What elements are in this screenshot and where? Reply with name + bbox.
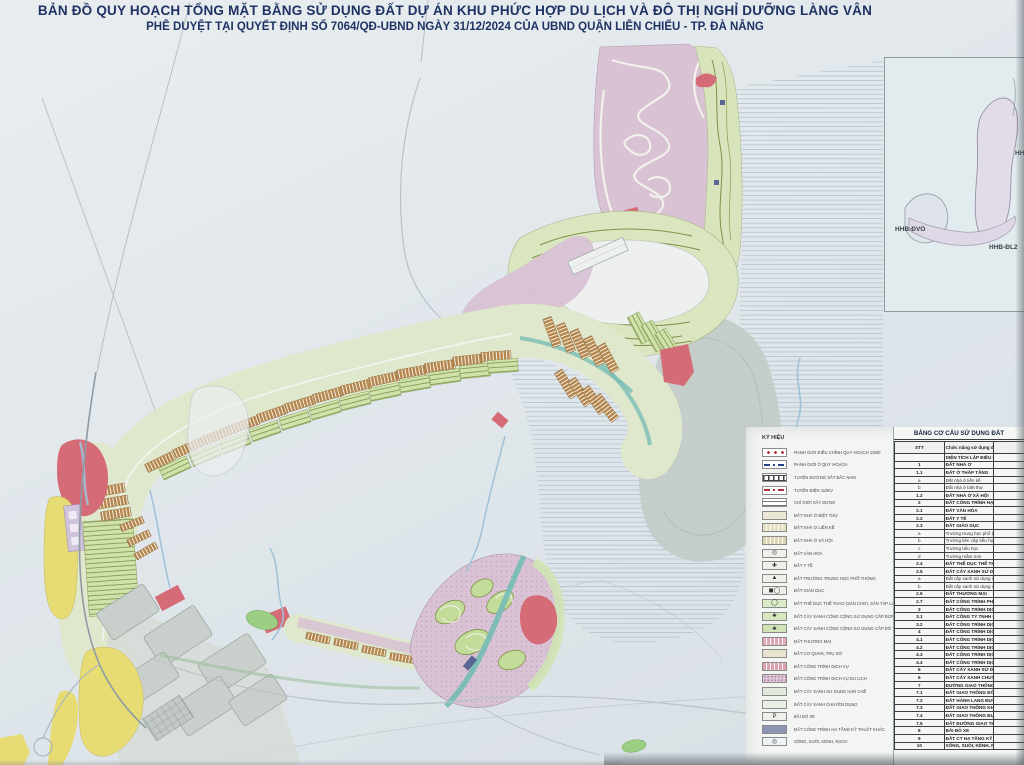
cell-name: DIỆN TÍCH LẬP ĐIỀU CHỈNH QUY HOẠCH	[944, 454, 994, 462]
table-row: aĐất nhà ở liền kề	[895, 476, 1024, 484]
cell-name: BÃI ĐỖ XE	[944, 727, 994, 735]
cell-stt: 2	[895, 499, 945, 507]
cell-stt: 4.3	[895, 651, 945, 659]
cell-stt: 1.2	[895, 491, 945, 499]
legend-swatch	[762, 725, 787, 734]
cell-name: ĐẤT CÂY XANH CHUYÊN DỤNG	[944, 674, 994, 682]
cell-stt: 2.2	[895, 514, 945, 522]
legend-label: SÔNG, SUỐI, KÊNH, RẠCH	[794, 740, 847, 745]
cell-stt: b	[895, 583, 945, 591]
table-row: DIỆN TÍCH LẬP ĐIỀU CHỈNH QUY HOẠCH	[895, 454, 1024, 462]
table-row: 1.1ĐẤT Ở THẤP TẦNG	[895, 469, 1024, 477]
cell-name: ĐẤT Y TẾ	[944, 514, 994, 522]
legend-swatch: ◯	[762, 599, 787, 608]
legend-label: RANH GIỚI ĐIỀU CHỈNH QUY HOẠCH 1/500	[794, 450, 880, 455]
legend-item: ĐẤT CÂY XANH CHUYÊN DỤNG	[762, 698, 890, 711]
table-row: 4ĐẤT CÔNG TRÌNH DỊCH VỤ DU LỊCH	[895, 628, 1024, 636]
inset-panel: SƠ ĐỒ PHÂN Ô QUY HOẠCH HHB-ĐVO HHB-ĐL2 H…	[884, 57, 1024, 312]
table-row: 2ĐẤT CÔNG TRÌNH HẠ TẦNG XÃ HỘI	[895, 499, 1024, 507]
table-row: 7.4ĐẤT GIAO THÔNG ĐƯỜNG SẮT	[895, 712, 1024, 720]
cell-name: ĐẤT CÔNG TRÌNH DỊCH VỤ	[944, 605, 994, 613]
col-header-stt: STT	[895, 442, 945, 454]
photo-edge-shadow-right	[1015, 0, 1024, 765]
photo-edge-shadow-bottom	[604, 752, 1024, 765]
legend-item: RANH GIỚI Ô QUY HOẠCH	[762, 459, 890, 472]
legend-item: ĐẤT THƯƠNG MẠI	[762, 635, 890, 648]
cell-name: ĐẤT ĐƯỜNG GIAO THÔNG NỘI BỘ	[944, 719, 994, 727]
legend-label: ĐẤT VĂN HÓA	[794, 551, 823, 556]
table-row: 4.4ĐẤT CÔNG TRÌNH DỊCH VỤ DU LỊCH- 4	[895, 659, 1024, 667]
legend-label: TUYẾN ĐƯỜNG SẮT BẮC NAM	[794, 475, 856, 480]
legend-label: ĐẤT CÔNG TRÌNH DỊCH VỤ DU LỊCH	[794, 677, 867, 682]
cell-name: ĐẤT HÀNH LANG ĐƯỜNG BỘ	[944, 697, 994, 705]
legend-swatch	[762, 662, 787, 671]
cell-stt: c	[895, 545, 945, 553]
plan-map-photo: BẢN ĐỒ QUY HOẠCH TỔNG MẶT BẰNG SỬ DỤNG Đ…	[0, 0, 1024, 765]
cell-stt: a	[895, 529, 945, 537]
legend-label: ĐẤT CÂY XANH SỬ DỤNG HẠN CHẾ	[794, 689, 866, 694]
legend-swatch	[762, 523, 787, 532]
cell-name: SÔNG, SUỐI, KÊNH, RẠCH	[944, 742, 994, 750]
cell-name: ĐẤT THỂ DỤC THỂ THAO	[944, 560, 994, 568]
cell-name: ĐẤT THƯƠNG MẠI	[944, 590, 994, 598]
cell-name: ĐẤT CÂY XANH SỬ DỤNG CÔNG CỘNG	[944, 567, 994, 575]
legend-item: ◎SÔNG, SUỐI, KÊNH, RẠCH	[762, 736, 890, 749]
cell-name: ĐẤT Ở THẤP TẦNG	[944, 469, 994, 477]
cell-stt: 4.4	[895, 659, 945, 667]
table-row: 7ĐƯỜNG GIAO THÔNG	[895, 681, 1024, 689]
legend-label: ĐẤT TRƯỜNG TRUNG HỌC PHỔ THÔNG	[794, 576, 876, 581]
cell-stt: 9	[895, 734, 945, 742]
land-table-title: BẢNG CƠ CẤU SỬ DỤNG ĐẤT	[894, 427, 1024, 440]
legend-swatch: ♣	[762, 612, 787, 621]
cell-name: Đất cây xanh sử dụng công cộng cấp đô th…	[944, 583, 994, 591]
legend-swatch: ♣	[762, 624, 787, 633]
table-row: 4.3ĐẤT CÔNG TRÌNH DỊCH VỤ DU LỊCH- 3	[895, 651, 1024, 659]
cell-name: ĐẤT CÂY XANH SỬ DỤNG HẠN CHẾ	[944, 666, 994, 674]
cell-stt: 3	[895, 605, 945, 613]
table-row: 3.2ĐẤT CÔNG TRÌNH DỊCH VỤ KHÁC	[895, 621, 1024, 629]
cell-stt: 4.1	[895, 636, 945, 644]
cell-stt: 7.3	[895, 704, 945, 712]
cell-stt: 2.1	[895, 507, 945, 515]
legend-item: CHỈ GIỚI XÂY DỰNG	[762, 496, 890, 509]
legend-label: RANH GIỚI Ô QUY HOẠCH	[794, 462, 847, 467]
cell-name: ĐẤT CÔNG TRÌNH HẠ TẦNG XÃ HỘI	[944, 499, 994, 507]
cell-stt: 4	[895, 628, 945, 636]
cell-name: Trường mầm non	[944, 552, 994, 560]
land-table: STT Chức năng sử dụng đất DIỆN TÍCH LẬP …	[894, 441, 1024, 750]
table-row: bTrường liên cấp tiểu học - trung học cơ…	[895, 537, 1024, 545]
legend-swatch: ▲	[762, 574, 787, 583]
legend-swatch	[762, 674, 787, 683]
cell-name: ĐẤT NHÀ Ở	[944, 461, 994, 469]
legend-label: ĐẤT CÔNG TRÌNH HẠ TẦNG KỸ THUẬT KHÁC	[794, 727, 885, 732]
red-blob-diamond	[520, 595, 557, 644]
legend-label: ĐẤT THỂ DỤC THỂ THAO (SÂN CHƠI, SÂN TẬP …	[794, 601, 905, 606]
cell-name: Đất nhà ở biệt thự	[944, 484, 994, 492]
cell-stt: b	[895, 484, 945, 492]
table-row: 2.3ĐẤT GIÁO DỤC	[895, 522, 1024, 530]
cell-name: ĐẤT CÔNG TRÌNH DỊCH VỤ DU LỊCH- 4	[944, 659, 994, 667]
cell-name: ĐẤT GIAO THÔNG ĐƯỜNG SẮT	[944, 712, 994, 720]
cell-stt: a	[895, 476, 945, 484]
legend-label: TUYẾN ĐIỆN 110KV	[794, 488, 833, 493]
cell-stt: 2.4	[895, 560, 945, 568]
legend-label: ĐẤT NHÀ Ở BIỆT THỰ	[794, 513, 838, 518]
cell-stt: 2.6	[895, 590, 945, 598]
table-row: 7.3ĐẤT GIAO THÔNG KHU VỰC	[895, 704, 1024, 712]
cell-name: ĐẤT CÔNG TRÌNH DỊCH VỤ DU LỊCH- 1	[944, 636, 994, 644]
table-row: 6ĐẤT CÂY XANH CHUYÊN DỤNG	[895, 674, 1024, 682]
cell-name: Đất nhà ở liền kề	[944, 476, 994, 484]
table-row: 2.1ĐẤT VĂN HÓA	[895, 507, 1024, 515]
cell-stt: a	[895, 575, 945, 583]
legend-label: ĐẤT NHÀ Ở LIỀN KỀ	[794, 525, 835, 530]
cell-stt: 8	[895, 727, 945, 735]
table-row: 4.2ĐẤT CÔNG TRÌNH DỊCH VỤ DU LỊCH- 2	[895, 643, 1024, 651]
table-row: aĐất cây xanh sử dụng công cộng đơn vị ở	[895, 575, 1024, 583]
cell-name: ĐẤT GIAO THÔNG ĐỐI NGOẠI (QUỐC LỘ 1A)	[944, 689, 994, 697]
cell-stt: 3.1	[895, 613, 945, 621]
table-row: 3.1ĐẤT CÔNG TY TNHH CHÀM CHÀM	[895, 613, 1024, 621]
legend-item: ◎ĐẤT VĂN HÓA	[762, 547, 890, 560]
table-row: dTrường mầm non	[895, 552, 1024, 560]
legend-label: ĐẤT CƠ QUAN, TRỤ SỞ	[794, 651, 842, 656]
legend-label: ĐẤT CÂY XANH CÔNG CỘNG SỬ DỤNG CẤP ĐƠN V…	[794, 614, 904, 619]
cell-name: ĐẤT CÔNG TRÌNH PHÒNG CHÁY CHỮA CHÁY	[944, 598, 994, 606]
table-row: bĐất cây xanh sử dụng công cộng cấp đô t…	[895, 583, 1024, 591]
legend-label: ĐẤT GIÁO DỤC	[794, 588, 824, 593]
cell-stt	[895, 454, 945, 462]
cell-name: ĐƯỜNG GIAO THÔNG	[944, 681, 994, 689]
legend-item: ĐẤT CÔNG TRÌNH HẠ TẦNG KỸ THUẬT KHÁC	[762, 723, 890, 736]
legend-item: TUYẾN ĐƯỜNG SẮT BẮC NAM	[762, 471, 890, 484]
cell-stt: d	[895, 552, 945, 560]
cell-stt: 2.3	[895, 522, 945, 530]
cell-stt: 7.4	[895, 712, 945, 720]
legend-items: RANH GIỚI ĐIỀU CHỈNH QUY HOẠCH 1/500RANH…	[762, 446, 890, 748]
legend-label: ĐẤT CÂY XANH CÔNG CỘNG SỬ DỤNG CẤP ĐÔ TH…	[794, 626, 899, 631]
cell-name: ĐẤT CÔNG TRÌNH DỊCH VỤ KHÁC	[944, 621, 994, 629]
legend-swatch	[762, 473, 787, 482]
cell-name: ĐẤT CÔNG TRÌNH DỊCH VỤ DU LỊCH- 3	[944, 651, 994, 659]
inset-label: HHB-ĐVO	[895, 226, 925, 233]
legend-item: ◯ĐẤT THỂ DỤC THỂ THAO (SÂN CHƠI, SÂN TẬP…	[762, 597, 890, 610]
cell-stt: 3.2	[895, 621, 945, 629]
cell-stt: 7.1	[895, 689, 945, 697]
inset-map	[885, 58, 1024, 311]
right-panel: KÝ HIỆU RANH GIỚI ĐIỀU CHỈNH QUY HOẠCH 1…	[746, 427, 1024, 765]
legend-swatch: ✚	[762, 561, 787, 570]
cell-name: Trường liên cấp tiểu học - trung học cơ …	[944, 537, 994, 545]
legend-item: PBÃI ĐỖ XE	[762, 710, 890, 723]
table-row: bĐất nhà ở biệt thự	[895, 484, 1024, 492]
legend-item: ✚ĐẤT Y TẾ	[762, 559, 890, 572]
inset-label: HHB-ĐL2	[989, 244, 1018, 251]
table-row: 4.1ĐẤT CÔNG TRÌNH DỊCH VỤ DU LỊCH- 1	[895, 636, 1024, 644]
table-row: 2.5ĐẤT CÂY XANH SỬ DỤNG CÔNG CỘNG	[895, 567, 1024, 575]
legend-swatch	[762, 486, 787, 495]
cell-name: ĐẤT CÔNG TRÌNH DỊCH VỤ DU LỊCH	[944, 628, 994, 636]
legend-item: ĐẤT CÂY XANH SỬ DỤNG HẠN CHẾ	[762, 685, 890, 698]
legend-label: ĐẤT NHÀ Ở XÃ HỘI	[794, 538, 833, 543]
legend-swatch	[762, 511, 787, 520]
cell-stt: 2.5	[895, 567, 945, 575]
legend-swatch	[762, 448, 787, 457]
map-title-block: BẢN ĐỒ QUY HOẠCH TỔNG MẶT BẰNG SỬ DỤNG Đ…	[0, 3, 910, 33]
faint-parcel-outline	[188, 386, 249, 476]
cell-name: ĐẤT CÔNG TRÌNH DỊCH VỤ DU LỊCH- 2	[944, 643, 994, 651]
cell-stt: 2.7	[895, 598, 945, 606]
legend-label: CHỈ GIỚI XÂY DỰNG	[794, 500, 835, 505]
legend-swatch: ◼◯	[762, 586, 787, 595]
legend-item: ĐẤT CÔNG TRÌNH DỊCH VỤ DU LỊCH	[762, 673, 890, 686]
legend-swatch	[762, 536, 787, 545]
table-row: 2.6ĐẤT THƯƠNG MẠI	[895, 590, 1024, 598]
cell-name: ĐẤT GIAO THÔNG KHU VỰC	[944, 704, 994, 712]
table-row: 1ĐẤT NHÀ Ở	[895, 461, 1024, 469]
cell-stt: 10	[895, 742, 945, 750]
cell-stt: 7	[895, 681, 945, 689]
cell-name: Trường trung học phổ thông	[944, 529, 994, 537]
cell-name: ĐẤT CT HẠ TẦNG KỸ THUẬT KHÁC	[944, 734, 994, 742]
commerce-lot-small	[491, 412, 508, 429]
legend-item: RANH GIỚI ĐIỀU CHỈNH QUY HOẠCH 1/500	[762, 446, 890, 459]
table-row: 2.7ĐẤT CÔNG TRÌNH PHÒNG CHÁY CHỮA CHÁY	[895, 598, 1024, 606]
photo-edge-shadow-bottom-left	[0, 760, 620, 765]
legend-swatch	[762, 700, 787, 709]
table-row: 7.1ĐẤT GIAO THÔNG ĐỐI NGOẠI (QUỐC LỘ 1A)	[895, 689, 1024, 697]
legend-label: ĐẤT Y TẾ	[794, 563, 813, 568]
cell-stt: 7.5	[895, 719, 945, 727]
cell-name: ĐẤT NHÀ Ở XÃ HỘI	[944, 491, 994, 499]
cell-stt: 6	[895, 674, 945, 682]
cell-name: Đất cây xanh sử dụng công cộng đơn vị ở	[944, 575, 994, 583]
table-row: cTrường tiểu học	[895, 545, 1024, 553]
cell-stt: 5	[895, 666, 945, 674]
legend-swatch	[762, 687, 787, 696]
legend-swatch	[762, 460, 787, 469]
table-row: 5ĐẤT CÂY XANH SỬ DỤNG HẠN CHẾ	[895, 666, 1024, 674]
col-header-name: Chức năng sử dụng đất	[944, 442, 994, 454]
legend-item: ĐẤT NHÀ Ở BIỆT THỰ	[762, 509, 890, 522]
legend-item: ◼◯ĐẤT GIÁO DỤC	[762, 585, 890, 598]
table-row: 7.2ĐẤT HÀNH LANG ĐƯỜNG BỘ	[895, 697, 1024, 705]
cell-stt: 4.2	[895, 643, 945, 651]
legend-item: ĐẤT CÔNG TRÌNH DỊCH VỤ	[762, 660, 890, 673]
page-title: BẢN ĐỒ QUY HOẠCH TỔNG MẶT BẰNG SỬ DỤNG Đ…	[0, 3, 910, 18]
legend-swatch: P	[762, 712, 787, 721]
legend-panel: KÝ HIỆU RANH GIỚI ĐIỀU CHỈNH QUY HOẠCH 1…	[746, 427, 892, 765]
legend-item: ▲ĐẤT TRƯỜNG TRUNG HỌC PHỔ THÔNG	[762, 572, 890, 585]
legend-label: BÃI ĐỖ XE	[794, 714, 815, 719]
cell-name: ĐẤT VĂN HÓA	[944, 507, 994, 515]
cell-stt: b	[895, 537, 945, 545]
table-row: 2.4ĐẤT THỂ DỤC THỂ THAO	[895, 560, 1024, 568]
red-lot-1	[155, 585, 185, 611]
cell-stt: 1.1	[895, 469, 945, 477]
legend-title: KÝ HIỆU	[762, 435, 890, 441]
legend-swatch: ◎	[762, 549, 787, 558]
legend-swatch	[762, 649, 787, 658]
land-table-panel: BẢNG CƠ CẤU SỬ DỤNG ĐẤT STT Chức năng sử…	[893, 427, 1024, 765]
legend-item: ♣ĐẤT CÂY XANH CÔNG CỘNG SỬ DỤNG CẤP ĐÔ T…	[762, 622, 890, 635]
table-row: 7.5ĐẤT ĐƯỜNG GIAO THÔNG NỘI BỘ	[895, 719, 1024, 727]
cell-name: ĐẤT GIÁO DỤC	[944, 522, 994, 530]
legend-label: ĐẤT CÂY XANH CHUYÊN DỤNG	[794, 702, 858, 707]
cell-name: ĐẤT CÔNG TY TNHH CHÀM CHÀM	[944, 613, 994, 621]
legend-item: TUYẾN ĐIỆN 110KV	[762, 484, 890, 497]
cell-name: Trường tiểu học	[944, 545, 994, 553]
cell-stt: 1	[895, 461, 945, 469]
legend-item: ĐẤT NHÀ Ở XÃ HỘI	[762, 534, 890, 547]
table-row: aTrường trung học phổ thông	[895, 529, 1024, 537]
legend-item: ♣ĐẤT CÂY XANH CÔNG CỘNG SỬ DỤNG CẤP ĐƠN …	[762, 610, 890, 623]
legend-item: ĐẤT CƠ QUAN, TRỤ SỞ	[762, 648, 890, 661]
legend-item: ĐẤT NHÀ Ở LIỀN KỀ	[762, 522, 890, 535]
table-row: 1.2ĐẤT NHÀ Ở XÃ HỘI	[895, 491, 1024, 499]
table-row: 10SÔNG, SUỐI, KÊNH, RẠCH	[895, 742, 1024, 750]
table-row: 9ĐẤT CT HẠ TẦNG KỸ THUẬT KHÁC	[895, 734, 1024, 742]
table-row: 8BÃI ĐỖ XE	[895, 727, 1024, 735]
legend-swatch: ◎	[762, 737, 787, 746]
legend-swatch	[762, 498, 787, 507]
cell-stt: 7.2	[895, 697, 945, 705]
legend-label: ĐẤT CÔNG TRÌNH DỊCH VỤ	[794, 664, 849, 669]
page-subtitle: PHÊ DUYỆT TẠI QUYẾT ĐỊNH SỐ 7064/QĐ-UBND…	[0, 21, 910, 33]
legend-label: ĐẤT THƯƠNG MẠI	[794, 639, 831, 644]
table-row: 2.2ĐẤT Y TẾ	[895, 514, 1024, 522]
legend-swatch	[762, 637, 787, 646]
table-row: 3ĐẤT CÔNG TRÌNH DỊCH VỤ	[895, 605, 1024, 613]
